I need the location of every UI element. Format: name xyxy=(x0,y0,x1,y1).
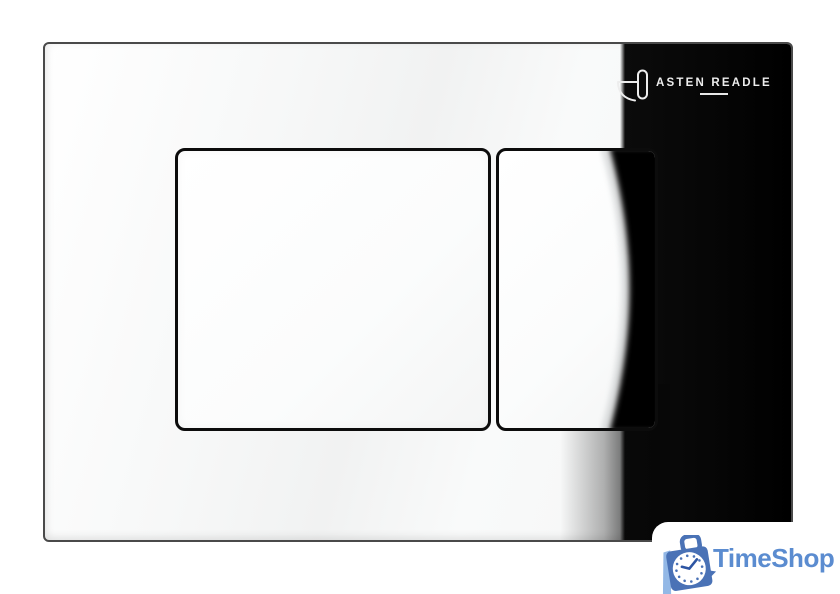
watermark: TimeShop xyxy=(652,522,840,594)
faucet-icon xyxy=(615,69,649,103)
button-chrome-reflection xyxy=(499,151,655,428)
brand-underline xyxy=(700,93,728,95)
shopping-bag-clock-icon xyxy=(656,535,718,594)
product-photo: ASTEN READLE xyxy=(0,0,840,594)
brand-logo: ASTEN READLE xyxy=(615,62,785,110)
watermark-text: TimeShop xyxy=(713,543,834,574)
brand-name: ASTEN READLE xyxy=(656,77,772,89)
brand-wordmark: ASTEN READLE xyxy=(656,77,772,95)
small-flush-button xyxy=(496,148,658,431)
flush-plate: ASTEN READLE xyxy=(43,42,793,542)
large-flush-button xyxy=(175,148,491,431)
